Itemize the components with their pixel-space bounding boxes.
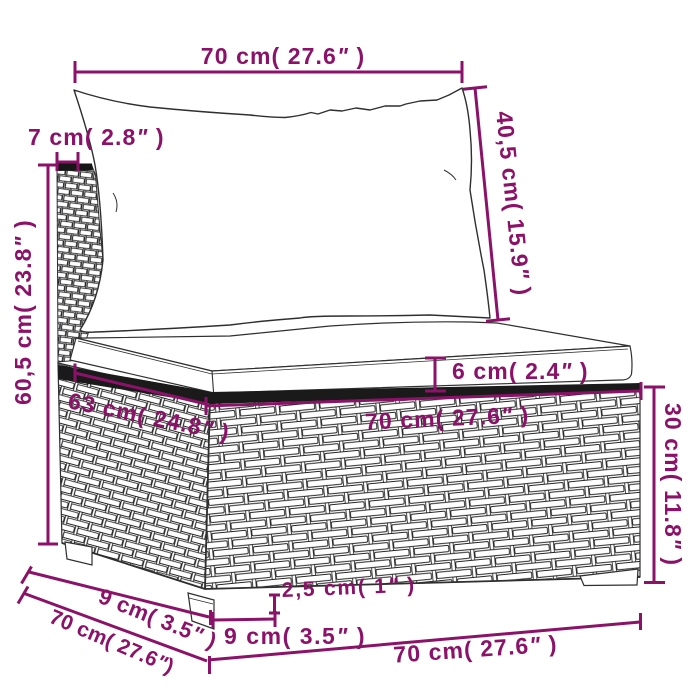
svg-text:6 cm( 2.4" ): 6 cm( 2.4" ) [452,358,589,384]
svg-text:70 cm( 27.6" ): 70 cm( 27.6" ) [201,43,365,69]
svg-text:60,5 cm( 23.8" ): 60,5 cm( 23.8" ) [10,219,36,405]
svg-text:30 cm( 11.8" ): 30 cm( 11.8" ) [660,403,686,566]
svg-text:9 cm( 3.5" ): 9 cm( 3.5" ) [224,623,366,649]
svg-text:7 cm( 2.8" ): 7 cm( 2.8" ) [28,124,165,150]
